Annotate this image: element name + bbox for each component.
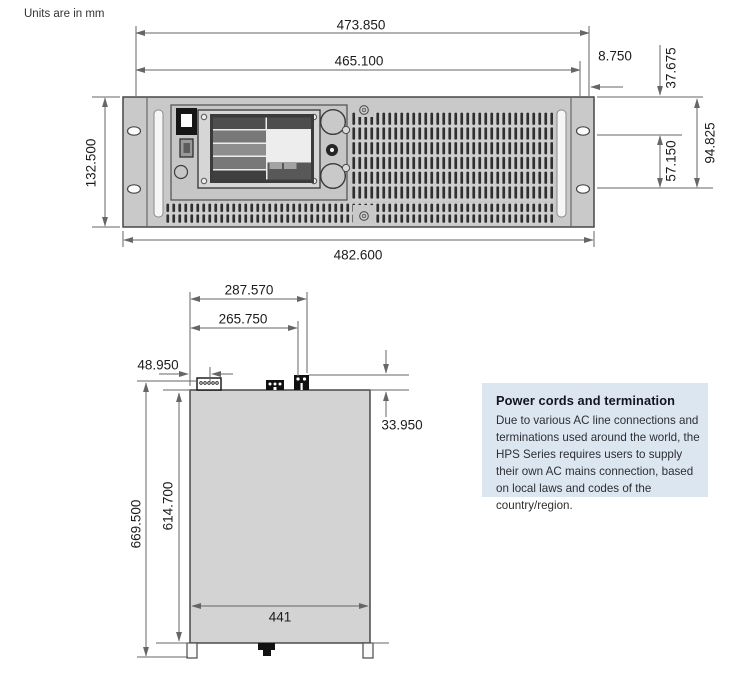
info-box-body: Due to various AC line connections and t… xyxy=(496,412,700,514)
rotary-knob-bottom xyxy=(321,164,346,189)
units-note: Units are in mm xyxy=(24,8,105,20)
dim-front-panel-height: 132.500 xyxy=(84,139,98,188)
dim-front-width-inner: 465.100 xyxy=(335,54,384,68)
dim-side-connector-height: 33.950 xyxy=(381,418,422,432)
foot-left xyxy=(187,643,197,658)
left-handle xyxy=(154,110,163,217)
foot-right xyxy=(363,643,373,658)
front-view xyxy=(123,97,594,227)
side-body xyxy=(190,390,370,643)
connector-right xyxy=(294,375,309,390)
technical-drawing xyxy=(0,0,754,679)
dim-front-width-overall: 482.600 xyxy=(334,248,383,262)
dim-front-hole-spacing: 57.150 xyxy=(664,140,678,181)
dim-front-hole-span: 94.825 xyxy=(703,122,717,163)
dim-side-connector-outer: 287.570 xyxy=(225,283,274,297)
info-box: Power cords and termination Due to vario… xyxy=(482,383,708,497)
dim-front-right-offset: 8.750 xyxy=(598,49,632,63)
info-box-title: Power cords and termination xyxy=(496,393,696,408)
dim-side-height-overall: 669.500 xyxy=(129,500,143,549)
bottom-connector xyxy=(258,643,275,656)
dim-side-inner-width: 441 xyxy=(269,610,292,624)
dimension-drawing-page: Units are in mm 473.850 465.100 8.750 13… xyxy=(0,0,754,679)
small-knob xyxy=(175,166,188,179)
connector-middle xyxy=(266,380,284,390)
lcd-screen xyxy=(210,114,314,183)
front-control-panel xyxy=(171,105,350,200)
right-handle xyxy=(557,110,566,217)
dim-front-width-upper: 473.850 xyxy=(337,18,386,32)
dim-front-hole-top-offset: 37.675 xyxy=(664,47,678,88)
rotary-knob-top xyxy=(321,110,346,135)
dim-side-body-height: 614.700 xyxy=(161,482,175,531)
dim-side-connector-inner: 265.750 xyxy=(219,312,268,326)
dim-side-connector-left-offset: 48.950 xyxy=(137,358,178,372)
terminal-block-left xyxy=(197,378,221,390)
